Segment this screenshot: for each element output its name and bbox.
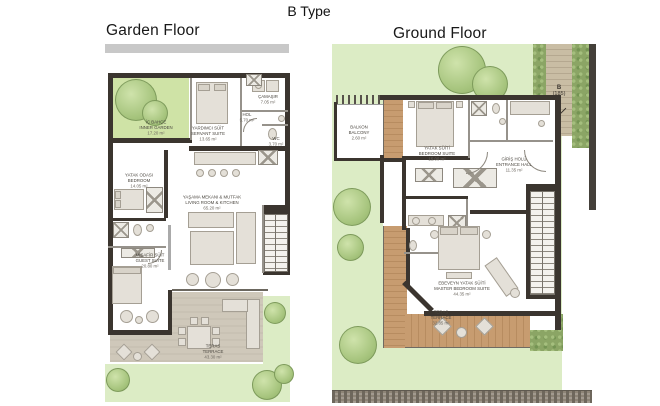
tree bbox=[337, 234, 364, 261]
shaft bbox=[246, 74, 262, 86]
stair-rail bbox=[542, 192, 543, 294]
wall bbox=[402, 158, 406, 230]
room-area: 3.70 m² bbox=[236, 142, 317, 148]
room-label-bedroom-suite: YATAK SÜİTİ BEDROOM SUITE 15.00 m² bbox=[397, 146, 478, 163]
partition bbox=[470, 140, 553, 142]
wall bbox=[406, 228, 410, 288]
room-area: 7.05 m² bbox=[228, 100, 309, 106]
room-label-terrace: TERAS TERRACE 43.30 m² bbox=[173, 344, 254, 361]
toilet bbox=[133, 224, 142, 236]
stool bbox=[208, 169, 216, 177]
kitchen-unit bbox=[258, 150, 278, 165]
dryer bbox=[266, 80, 279, 92]
kitchen-counter bbox=[194, 152, 256, 165]
wall bbox=[108, 218, 166, 221]
room-label-balcony: BALKON BALCONY 2.60 m² bbox=[319, 125, 400, 142]
garden-floor-heading: Garden Floor bbox=[106, 22, 200, 40]
room-area: 44.35 m² bbox=[422, 292, 503, 298]
side-table bbox=[456, 327, 467, 338]
room-label-laundry: ÇAMAŞIR 7.05 m² bbox=[228, 94, 309, 105]
room-area: 2.60 m² bbox=[319, 136, 400, 142]
wall bbox=[108, 73, 290, 78]
room-label-ground-terrace: TERAS TERRACE 32.85 m² bbox=[401, 310, 482, 327]
armchair bbox=[186, 273, 199, 286]
wall bbox=[526, 295, 556, 299]
tree bbox=[333, 188, 371, 226]
sofa bbox=[188, 212, 234, 228]
armchair bbox=[120, 310, 133, 323]
bush bbox=[264, 302, 286, 324]
bathtub bbox=[510, 101, 550, 115]
wardrobe bbox=[146, 187, 163, 213]
wall bbox=[380, 95, 560, 100]
outdoor-sofa bbox=[222, 299, 248, 312]
wall bbox=[380, 155, 384, 223]
chair bbox=[212, 327, 220, 335]
sink bbox=[146, 224, 154, 232]
room-label-entrance-hall: GİRİŞ HOLÜ ENTRANCE HALL 11.35 m² bbox=[474, 157, 555, 174]
room-area: 11.35 m² bbox=[474, 168, 555, 174]
room-area: 65.20 m² bbox=[172, 206, 253, 212]
stone-wall bbox=[332, 390, 592, 403]
side-table bbox=[133, 352, 142, 361]
wood-deck bbox=[383, 226, 407, 348]
room-label-living: YAŞAMA MEKANI & MUTFAK LIVING ROOM & KIT… bbox=[172, 195, 253, 212]
room-area: 14.05 m² bbox=[99, 184, 180, 190]
armchair bbox=[146, 310, 159, 323]
sink bbox=[412, 217, 420, 225]
bush bbox=[106, 368, 130, 392]
tree bbox=[339, 326, 377, 364]
coffee-table bbox=[205, 272, 221, 288]
toilet bbox=[492, 103, 500, 114]
room-label-wc: WC 3.70 m² bbox=[236, 136, 317, 147]
page-title: B Type bbox=[259, 3, 359, 19]
partition bbox=[262, 124, 288, 126]
stair-landing bbox=[530, 184, 555, 191]
wall bbox=[108, 330, 172, 335]
sink bbox=[538, 120, 545, 127]
room-area: 43.30 m² bbox=[173, 355, 254, 361]
sofa bbox=[236, 212, 256, 264]
room-label-hall: HOL 5.70 m² bbox=[207, 112, 288, 123]
pillow bbox=[115, 200, 121, 208]
side-table bbox=[135, 316, 143, 324]
toilet bbox=[409, 240, 417, 251]
room-label-guest-suite: MİSAFİR SÜİT GUEST SUITE 20.80 m² bbox=[110, 253, 191, 270]
shower bbox=[113, 222, 129, 238]
room-label-master-suite: EBEVEYN YATAK SÜİTİ MASTER BEDROOM SUITE… bbox=[422, 281, 503, 298]
room-area: 32.85 m² bbox=[401, 321, 482, 327]
bench bbox=[446, 272, 472, 279]
wall bbox=[334, 158, 384, 161]
room-area: 5.70 m² bbox=[207, 118, 288, 124]
stool bbox=[232, 169, 240, 177]
nightstand bbox=[408, 101, 415, 108]
pillow bbox=[418, 102, 434, 109]
ground-floor-heading: Ground Floor bbox=[393, 25, 487, 43]
nightstand bbox=[482, 230, 491, 239]
floorplan-sheet: B Type Garden Floor Ground Floor bbox=[0, 0, 660, 406]
chair bbox=[178, 327, 186, 335]
wall bbox=[470, 210, 528, 214]
staircase bbox=[264, 214, 288, 272]
outdoor-sofa bbox=[246, 299, 260, 349]
window-wall bbox=[172, 289, 268, 291]
pillow bbox=[460, 227, 478, 235]
sink bbox=[428, 217, 436, 225]
chair bbox=[190, 317, 198, 325]
pouf bbox=[510, 288, 520, 298]
pillow bbox=[214, 84, 226, 91]
wall bbox=[402, 196, 468, 199]
nightstand bbox=[430, 230, 439, 239]
chair bbox=[201, 317, 209, 325]
partition bbox=[506, 100, 508, 142]
bush bbox=[274, 364, 294, 384]
stool bbox=[220, 169, 228, 177]
stool bbox=[196, 169, 204, 177]
room-area: 15.00 m² bbox=[397, 157, 478, 163]
pillow bbox=[440, 227, 458, 235]
room-area: 20.80 m² bbox=[110, 264, 191, 270]
shower bbox=[471, 101, 487, 116]
pillow bbox=[115, 191, 121, 199]
sink bbox=[499, 118, 506, 125]
room-label-bedroom: YATAK ODASI BEDROOM 14.05 m² bbox=[99, 173, 180, 190]
hedge bbox=[572, 44, 589, 148]
stair-rail bbox=[275, 215, 276, 271]
boundary-wall bbox=[589, 44, 596, 210]
nightstand bbox=[456, 101, 463, 108]
pillow bbox=[436, 102, 452, 109]
wardrobe bbox=[415, 168, 443, 182]
retaining-wall bbox=[105, 44, 289, 53]
balcony-railing bbox=[336, 95, 382, 104]
pillow bbox=[198, 84, 210, 91]
wall bbox=[168, 290, 172, 335]
sofa bbox=[190, 231, 234, 265]
stair-landing bbox=[264, 205, 288, 214]
armchair bbox=[226, 273, 239, 286]
